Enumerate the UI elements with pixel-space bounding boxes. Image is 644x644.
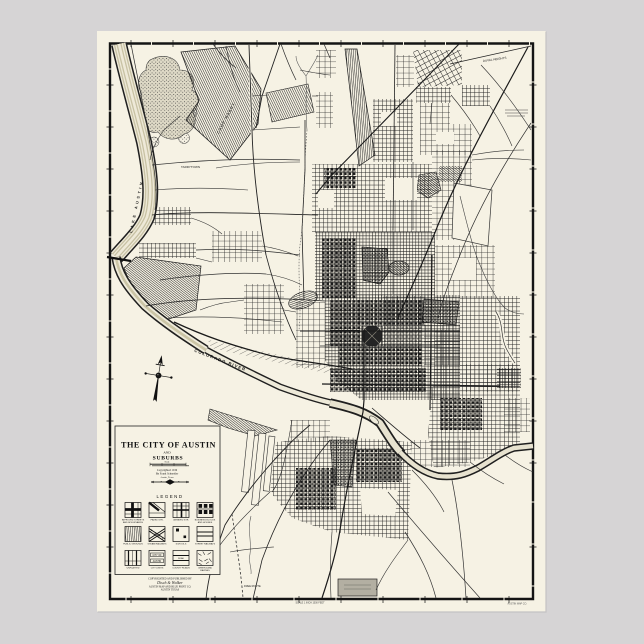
svg-text:AND HOUSES: AND HOUSES bbox=[198, 521, 213, 524]
svg-text:AND: AND bbox=[163, 451, 171, 455]
svg-text:STREET RAILWAYS: STREET RAILWAYS bbox=[195, 543, 216, 546]
svg-text:UNPLATTED: UNPLATTED bbox=[127, 567, 140, 570]
svg-text:Scale: Scale bbox=[165, 462, 170, 464]
svg-text:ROAD: ROAD bbox=[178, 557, 185, 560]
svg-text:AUSTIN: AUSTIN bbox=[153, 560, 162, 563]
svg-text:THE CITY OF AUSTIN: THE CITY OF AUSTIN bbox=[121, 441, 216, 450]
svg-text:AUSTIN MAP CO.: AUSTIN MAP CO. bbox=[508, 603, 528, 606]
svg-text:AUSTIN TEXAS: AUSTIN TEXAS bbox=[161, 589, 180, 592]
svg-text:SUBURBS: SUBURBS bbox=[153, 456, 184, 462]
svg-text:Disch & Walker: Disch & Walker bbox=[156, 580, 183, 585]
svg-text:STEAM RAILWAYS: STEAM RAILWAYS bbox=[147, 543, 167, 546]
svg-text:CITY LIMITS: CITY LIMITS bbox=[151, 568, 164, 570]
svg-text:SCHOOLS: SCHOOLS bbox=[176, 544, 187, 546]
svg-text:CITY OF: CITY OF bbox=[152, 555, 162, 557]
svg-text:FREE ROUTE: FREE ROUTE bbox=[244, 584, 261, 588]
svg-text:SCALE 1 INCH 1500 FEET: SCALE 1 INCH 1500 FEET bbox=[295, 602, 325, 605]
svg-text:PAVED STR.: PAVED STR. bbox=[151, 519, 164, 522]
svg-text:Austin, Texas: Austin, Texas bbox=[160, 476, 173, 479]
svg-text:RAVINES: RAVINES bbox=[200, 569, 210, 572]
svg-text:LEGEND: LEGEND bbox=[156, 494, 183, 499]
svg-text:PUBLIC GROUNDS: PUBLIC GROUNDS bbox=[123, 544, 143, 546]
svg-text:AND BOULEVARDS: AND BOULEVARDS bbox=[123, 521, 144, 524]
svg-text:TARRYTOWN: TARRYTOWN bbox=[181, 165, 200, 169]
svg-text:COUNTY ROADS: COUNTY ROADS bbox=[172, 567, 190, 570]
svg-text:UNPAVED STR.: UNPAVED STR. bbox=[173, 519, 189, 522]
